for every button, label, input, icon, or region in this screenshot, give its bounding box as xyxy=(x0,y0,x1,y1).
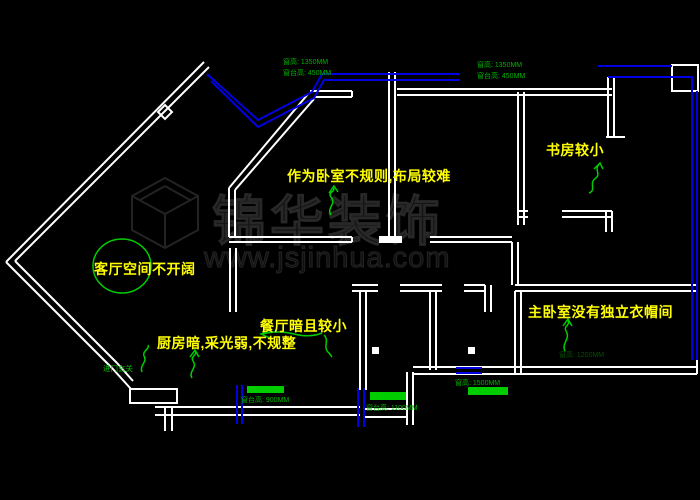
annotation-master: 主卧室没有独立衣帽间 xyxy=(528,304,673,320)
annotation-study: 书房较小 xyxy=(546,142,604,158)
label-window-height-topleft: 窗高: 1350MM xyxy=(283,57,328,66)
entry-label: 进门玄关 xyxy=(103,363,133,373)
master-squiggle xyxy=(563,319,572,351)
annotation-kitchen: 厨房暗,采光弱,不规整 xyxy=(157,335,297,351)
annotation-bedroom: 作为卧室不规则,布局较难 xyxy=(287,168,451,184)
label-sill-height-bottommid: 窗台高: 1100MM xyxy=(366,403,418,412)
label-window-height-master: 窗高: 1200MM xyxy=(559,350,604,359)
window-bar-left xyxy=(247,386,284,393)
watermark-url: www.jsjinhua.com xyxy=(203,242,450,274)
entry-squiggle xyxy=(141,345,148,372)
annotation-living: 客厅空间不开阔 xyxy=(93,261,196,277)
door-frame-kitchen xyxy=(237,385,242,424)
window-bar-right xyxy=(468,387,508,395)
label-sill-height-topmid: 窗台高: 450MM xyxy=(477,71,525,80)
label-window-height-bottomright: 窗高: 1500MM xyxy=(455,378,500,387)
annotation-dining: 餐厅暗且较小 xyxy=(259,318,347,334)
kitchen-squiggle xyxy=(190,350,199,378)
door-frame-dining xyxy=(358,388,364,427)
door-hinge-left xyxy=(373,348,378,353)
label-window-height-topmid: 窗高: 1350MM xyxy=(477,60,522,69)
bay-window-lines xyxy=(207,74,460,127)
label-sill-height-topleft: 窗台高: 450MM xyxy=(283,68,331,77)
bath-window-lines xyxy=(456,368,482,373)
door-hinge-right xyxy=(469,348,474,353)
study-squiggle xyxy=(589,163,603,193)
watermark: 锦华装饰 www.jsjinhua.com xyxy=(132,178,450,274)
wall-endcap xyxy=(380,237,401,242)
cube-logo-icon xyxy=(132,178,198,248)
cad-floorplan-canvas: 锦华装饰 www.jsjinhua.com 窗高: 1350MM xyxy=(0,0,700,500)
window-bar-mid xyxy=(370,392,406,400)
floorplan-drawing: 锦华装饰 www.jsjinhua.com 窗高: 1350MM xyxy=(0,0,700,500)
label-sill-height-bottomleft: 窗台高: 900MM xyxy=(241,395,289,404)
entry-step xyxy=(130,389,177,403)
